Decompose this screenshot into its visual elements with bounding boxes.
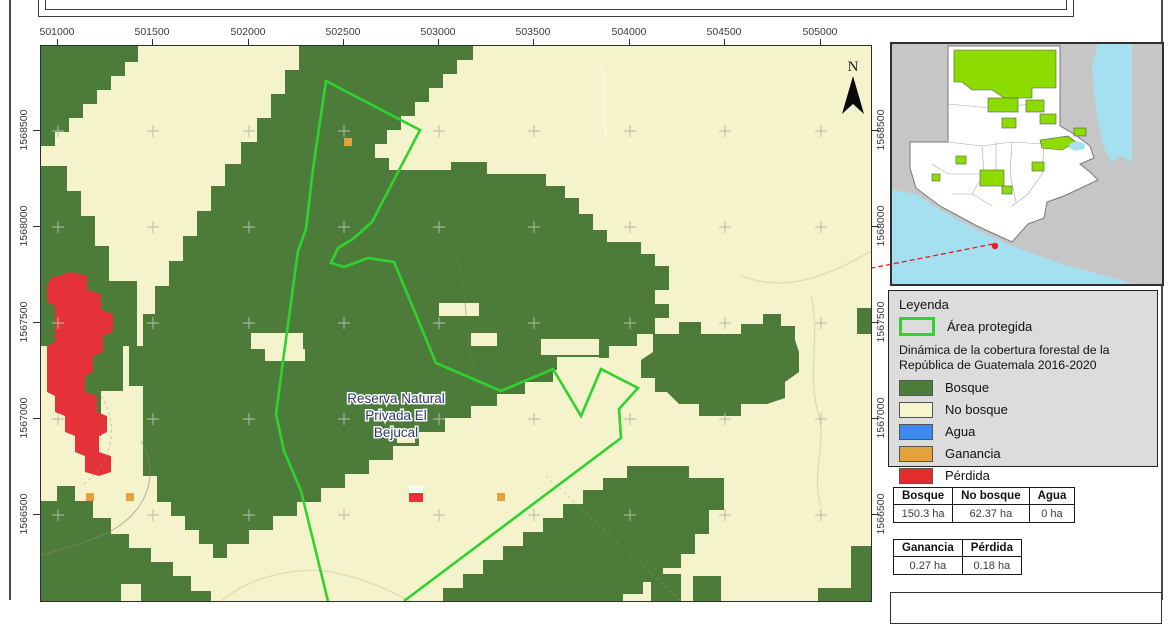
svg-text:Reserva Natural: Reserva Natural [347,391,445,406]
white-patch [409,485,423,493]
axis-label-left: 1567000 [18,398,30,439]
svg-text:Privada El: Privada El [365,408,427,423]
legend-dataset-line2: República de Guatemala 2016-2020 [899,358,1097,372]
forest-cover-map: Reserva Natural Privada El Bejucal N [41,46,871,601]
change-value: 0.27 ha [894,557,963,575]
reserve-location-dot [992,243,998,249]
protected-area-label: Área protegida [947,319,1032,334]
axis-label-left: 1568000 [18,206,30,247]
axis-tick [872,130,879,131]
axis-label-top: 503000 [420,26,455,38]
ganancia-label: Ganancia [945,446,1001,461]
protected-area-swatch [899,317,935,336]
change-header: Pérdida [962,540,1021,557]
legend-title: Leyenda [899,297,1147,312]
change-value: 0.18 ha [962,557,1021,575]
axis-label-left: 1567500 [18,302,30,343]
bosque-label: Bosque [945,380,989,395]
bosque-swatch [899,380,933,396]
axis-label-top: 502500 [325,26,360,38]
agua-swatch [899,424,933,440]
main-map[interactable]: Reserva Natural Privada El Bejucal N [40,45,872,602]
coverage-table: Bosque No bosque Agua 150.3 ha 62.37 ha … [893,487,1075,523]
coverage-header: Agua [1029,488,1075,505]
axis-tick [33,514,40,515]
coverage-value: 62.37 ha [953,505,1029,523]
perdida-label: Pérdida [945,468,990,483]
axis-label-top: 504500 [706,26,741,38]
axis-tick [33,130,40,131]
axis-label-top: 505000 [802,26,837,38]
axis-tick [872,322,879,323]
perdida-swatch [899,468,933,484]
legend-dataset-title: Dinámica de la cobertura forestal de la … [899,343,1147,374]
axis-tick [872,514,879,515]
axis-label-top: 503500 [515,26,550,38]
guatemala-inset [892,44,1162,284]
no-bosque-label: No bosque [945,402,1008,417]
axis-label-left: 1568500 [18,110,30,151]
change-table: Ganancia Pérdida 0.27 ha 0.18 ha [893,539,1022,575]
ganancia-swatch [899,446,933,462]
coverage-value: 0 ha [1029,505,1075,523]
legend: Leyenda Área protegida Dinámica de la co… [888,290,1158,467]
no-bosque-swatch [899,402,933,418]
svg-text:Bejucal: Bejucal [374,425,418,440]
axis-label-top: 501000 [39,26,74,38]
axis-label-top: 501500 [134,26,169,38]
axis-tick [872,226,879,227]
axis-tick [872,418,879,419]
axis-tick [33,322,40,323]
legend-dataset-line1: Dinámica de la cobertura forestal de la [899,343,1110,357]
coverage-header: No bosque [953,488,1029,505]
agua-label: Agua [945,424,975,439]
inset-overview-map[interactable] [890,42,1164,286]
title-box-inner [45,0,1067,10]
axis-label-left: 1566500 [18,494,30,535]
lake-izabal [1069,142,1085,151]
change-header: Ganancia [894,540,963,557]
north-label: N [848,59,859,75]
bottom-box [890,592,1162,624]
axis-tick [33,418,40,419]
coverage-value: 150.3 ha [894,505,953,523]
axis-tick [33,226,40,227]
axis-label-top: 502000 [230,26,265,38]
coverage-header: Bosque [894,488,953,505]
axis-label-top: 504000 [611,26,646,38]
page-border-left [9,0,11,600]
